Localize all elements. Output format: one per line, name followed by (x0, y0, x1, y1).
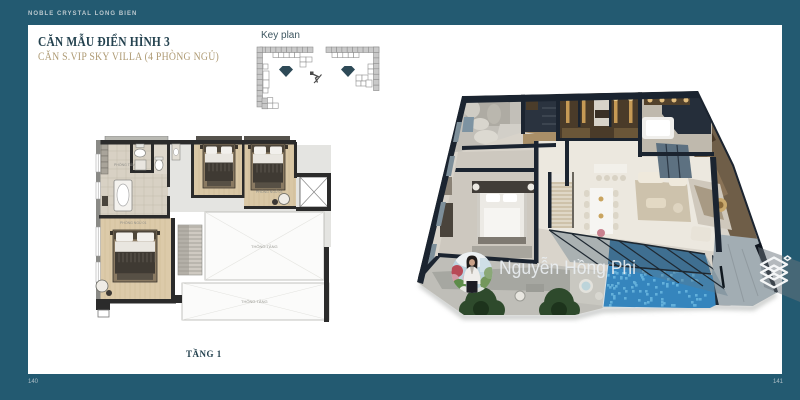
svg-text:PHÒNG NGỦ 03: PHÒNG NGỦ 03 (256, 189, 283, 194)
svg-text:PHÒNG NGỦ 01: PHÒNG NGỦ 01 (120, 220, 147, 225)
svg-text:PHÒNG TẮM: PHÒNG TẮM (114, 162, 135, 167)
svg-text:THÔNG TẦNG: THÔNG TẦNG (251, 244, 278, 249)
svg-text:THÔNG TẦNG: THÔNG TẦNG (241, 299, 268, 304)
